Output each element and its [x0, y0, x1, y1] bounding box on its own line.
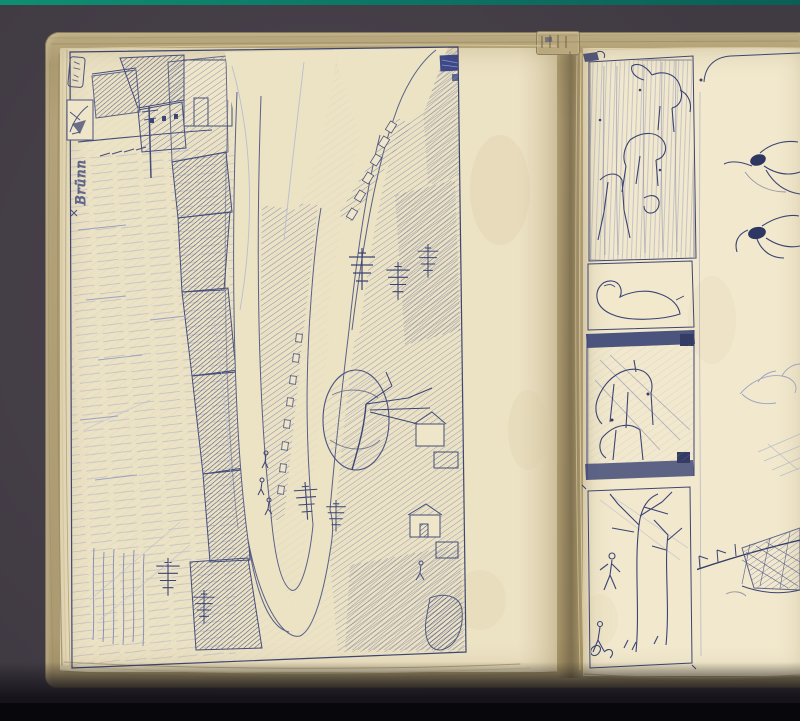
scanned-photo: Brünn — [0, 0, 800, 721]
left-page — [60, 48, 557, 672]
scan-edge-strip-top — [0, 0, 800, 5]
book-bottom-shadow — [0, 662, 800, 706]
book-gutter — [518, 46, 594, 678]
scan-edge-strip-bottom — [0, 703, 800, 721]
binding-tab — [536, 31, 580, 55]
right-page — [583, 48, 800, 676]
